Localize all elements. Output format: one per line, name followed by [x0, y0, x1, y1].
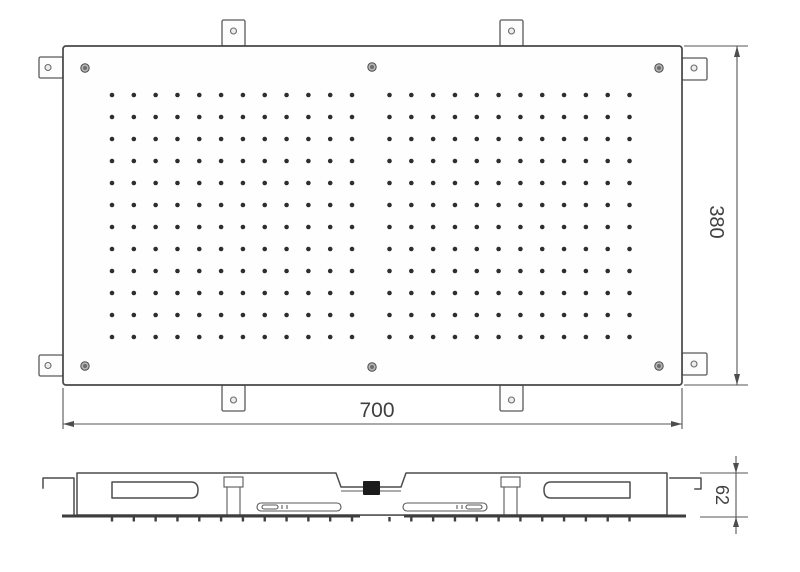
nozzle-dot: [284, 247, 289, 252]
nozzle-dot: [284, 335, 289, 340]
nozzle-dot: [409, 115, 414, 120]
nozzle-dot: [175, 181, 180, 186]
nozzle-dot: [431, 93, 436, 98]
nozzle-dot: [627, 159, 632, 164]
nozzle-dot: [197, 269, 202, 274]
nozzle-dot: [241, 159, 246, 164]
nozzle-dot: [350, 203, 355, 208]
nozzle-dot: [241, 137, 246, 142]
tab-hole: [691, 361, 697, 367]
nozzle-dot: [605, 335, 610, 340]
nozzle-dot: [262, 225, 267, 230]
nozzle-dot: [241, 93, 246, 98]
nozzle-dot: [431, 247, 436, 252]
nozzle-dot: [110, 225, 115, 230]
nozzle-dot: [540, 247, 545, 252]
nozzle-dot: [453, 115, 458, 120]
nozzle-dot: [197, 247, 202, 252]
nozzle-dot: [584, 225, 589, 230]
nozzle-dot: [496, 137, 501, 142]
screw: [81, 64, 89, 72]
nozzle-dot: [306, 225, 311, 230]
nozzle-dot: [387, 181, 392, 186]
nozzle-dot: [431, 291, 436, 296]
nozzle-dot: [453, 93, 458, 98]
right-channel-slot: [544, 482, 630, 498]
nozzle-dot: [387, 115, 392, 120]
nozzle-dot: [197, 313, 202, 318]
nozzle-dot: [306, 247, 311, 252]
left-fastener-slot: [257, 503, 341, 511]
nozzle-dot: [350, 93, 355, 98]
nozzle-dot: [219, 247, 224, 252]
screw: [368, 63, 376, 71]
nozzle-dot: [132, 313, 137, 318]
side-view: [43, 473, 701, 522]
nozzle-dot: [627, 291, 632, 296]
nozzle-dot: [132, 181, 137, 186]
nozzle-dot: [562, 225, 567, 230]
nozzle-dot: [153, 291, 158, 296]
nozzle-dot: [153, 335, 158, 340]
nozzle-dot: [153, 269, 158, 274]
nozzle-dot: [474, 93, 479, 98]
nozzle-dot: [197, 159, 202, 164]
nozzle-dot: [132, 269, 137, 274]
nozzle-dot: [387, 247, 392, 252]
dimension-width: 700: [63, 388, 682, 429]
nozzle-dot: [328, 313, 333, 318]
nozzle-dot: [627, 181, 632, 186]
nozzle-dot: [350, 225, 355, 230]
nozzle-dot: [518, 137, 523, 142]
nozzle-dot: [409, 269, 414, 274]
nozzle-dot: [219, 181, 224, 186]
nozzle-dot: [409, 247, 414, 252]
nozzle-dot: [562, 313, 567, 318]
nozzle-dot: [328, 203, 333, 208]
nozzle-dot: [518, 335, 523, 340]
nozzle-dot: [518, 159, 523, 164]
nozzle-dot: [518, 291, 523, 296]
nozzle-dot: [584, 291, 589, 296]
nozzle-dot: [110, 159, 115, 164]
nozzle-dot: [562, 137, 567, 142]
nozzle-dot: [219, 291, 224, 296]
nozzle-dot: [132, 115, 137, 120]
nozzle-dot: [175, 159, 180, 164]
dimension-height: 380: [684, 46, 748, 385]
top-view: [39, 20, 707, 411]
nozzle-dot: [496, 93, 501, 98]
nozzle-dot: [306, 335, 311, 340]
nozzle-dot: [627, 247, 632, 252]
nozzle-dot: [350, 335, 355, 340]
nozzle-dot: [431, 181, 436, 186]
nozzle-dot: [562, 269, 567, 274]
dimension-width-label: 700: [359, 399, 394, 422]
nozzle-dot: [132, 225, 137, 230]
nozzle-dot: [605, 225, 610, 230]
nozzle-dot: [350, 181, 355, 186]
nozzle-dot: [284, 313, 289, 318]
nozzle-dot: [306, 137, 311, 142]
nozzle-dot: [627, 115, 632, 120]
nozzle-dot: [328, 137, 333, 142]
nozzle-dot: [197, 93, 202, 98]
nozzle-dot: [241, 335, 246, 340]
nozzle-dot: [518, 93, 523, 98]
nozzle-dot: [431, 137, 436, 142]
nozzle-dot: [584, 269, 589, 274]
tab-hole: [45, 363, 51, 369]
left-hook: [43, 478, 74, 515]
nozzle-dot: [175, 93, 180, 98]
nozzle-dot: [241, 291, 246, 296]
nozzle-dot: [627, 225, 632, 230]
nozzle-dot: [262, 203, 267, 208]
left-channel-slot: [112, 482, 198, 498]
nozzle-dot: [241, 181, 246, 186]
nozzle-dot: [496, 291, 501, 296]
arrowhead-right: [671, 421, 682, 427]
nozzle-dot: [328, 247, 333, 252]
nozzle-dot: [605, 137, 610, 142]
nozzle-dot: [540, 313, 545, 318]
side-nozzle-ticks: [112, 517, 630, 522]
nozzle-dot: [350, 291, 355, 296]
right-fastener-slot: [403, 503, 487, 511]
nozzle-dot: [328, 115, 333, 120]
tab-hole: [691, 65, 697, 71]
screw: [655, 64, 663, 72]
nozzle-dot: [387, 291, 392, 296]
nozzle-dot: [110, 137, 115, 142]
nozzle-dot: [627, 203, 632, 208]
nozzle-dot: [241, 247, 246, 252]
nozzle-dot: [197, 203, 202, 208]
nozzle-dot: [540, 159, 545, 164]
nozzle-dot: [496, 203, 501, 208]
nozzle-dot: [496, 225, 501, 230]
nozzle-dot: [328, 269, 333, 274]
nozzle-dot: [219, 203, 224, 208]
nozzle-dot: [262, 159, 267, 164]
nozzle-dot: [409, 335, 414, 340]
nozzle-dot: [153, 115, 158, 120]
nozzle-dot: [153, 203, 158, 208]
nozzle-dot: [132, 159, 137, 164]
nozzle-dot: [562, 335, 567, 340]
nozzle-dot: [175, 247, 180, 252]
nozzle-dot: [262, 313, 267, 318]
nozzle-dot: [562, 115, 567, 120]
nozzle-dot: [474, 269, 479, 274]
screw: [368, 363, 376, 371]
nozzle-dot: [584, 159, 589, 164]
nozzle-dot: [306, 181, 311, 186]
drawing-page: 700 380: [0, 0, 800, 572]
nozzle-dot: [431, 159, 436, 164]
nozzle-dot: [262, 269, 267, 274]
nozzle-dot: [284, 291, 289, 296]
nozzle-dot: [431, 335, 436, 340]
nozzle-dot: [175, 225, 180, 230]
nozzle-dot: [284, 159, 289, 164]
nozzle-dot: [132, 291, 137, 296]
nozzle-dot: [584, 247, 589, 252]
nozzle-dot: [453, 291, 458, 296]
nozzle-dot: [110, 291, 115, 296]
nozzle-dot: [474, 313, 479, 318]
nozzle-dot: [387, 203, 392, 208]
nozzle-dot: [350, 269, 355, 274]
nozzle-dot: [474, 137, 479, 142]
nozzle-dot: [453, 203, 458, 208]
nozzle-dot: [474, 181, 479, 186]
nozzle-dot: [175, 313, 180, 318]
nozzle-dot: [474, 225, 479, 230]
nozzle-dot: [584, 181, 589, 186]
nozzle-dot: [431, 313, 436, 318]
nozzle-dot: [284, 93, 289, 98]
arrowhead-left: [63, 421, 74, 427]
nozzle-dot: [328, 225, 333, 230]
nozzle-dot: [540, 181, 545, 186]
nozzle-dot: [219, 225, 224, 230]
nozzle-dot: [284, 203, 289, 208]
nozzle-dot: [262, 181, 267, 186]
nozzle-dot: [584, 137, 589, 142]
nozzle-dot: [153, 159, 158, 164]
nozzle-dot: [110, 115, 115, 120]
nozzle-dot: [409, 137, 414, 142]
nozzle-dot: [328, 93, 333, 98]
nozzle-dot: [284, 137, 289, 142]
nozzle-dot: [306, 115, 311, 120]
nozzle-dot: [387, 335, 392, 340]
nozzle-dot: [153, 181, 158, 186]
nozzle-dot: [175, 269, 180, 274]
nozzle-dot: [262, 335, 267, 340]
nozzle-dot: [306, 203, 311, 208]
inlet-connector: [363, 481, 380, 495]
nozzle-dot: [175, 291, 180, 296]
nozzle-dot: [262, 137, 267, 142]
arrowhead-down: [734, 374, 740, 385]
nozzle-dot: [605, 93, 610, 98]
arrowhead-down: [733, 463, 739, 473]
nozzle-dot: [605, 203, 610, 208]
nozzle-dot: [584, 335, 589, 340]
nozzle-dot: [110, 269, 115, 274]
nozzle-dot: [605, 115, 610, 120]
nozzle-dot: [518, 269, 523, 274]
nozzle-dot: [540, 335, 545, 340]
nozzle-dot: [175, 335, 180, 340]
nozzle-dot: [562, 247, 567, 252]
nozzle-dot: [562, 203, 567, 208]
nozzle-dot: [518, 115, 523, 120]
nozzle-dot: [110, 335, 115, 340]
nozzle-dot: [262, 247, 267, 252]
screw: [81, 362, 89, 370]
nozzle-dot: [350, 313, 355, 318]
nozzle-dot: [627, 335, 632, 340]
nozzle-dot: [328, 181, 333, 186]
nozzle-dot: [262, 291, 267, 296]
nozzle-dot: [110, 203, 115, 208]
nozzle-dot: [387, 137, 392, 142]
nozzle-dot: [306, 269, 311, 274]
nozzle-dot: [175, 115, 180, 120]
dimension-height-label: 380: [705, 205, 727, 238]
nozzle-dot: [431, 225, 436, 230]
nozzle-dot: [453, 247, 458, 252]
nozzle-dot: [175, 137, 180, 142]
nozzle-dot: [518, 203, 523, 208]
nozzle-dot: [241, 225, 246, 230]
nozzle-dot: [518, 181, 523, 186]
nozzle-dot: [605, 159, 610, 164]
nozzle-dot: [328, 335, 333, 340]
nozzle-dot: [540, 93, 545, 98]
nozzle-dot: [627, 269, 632, 274]
nozzle-dot: [350, 137, 355, 142]
nozzle-dot: [328, 291, 333, 296]
tab-hole: [231, 28, 237, 34]
nozzle-dot: [409, 313, 414, 318]
nozzle-dot: [241, 269, 246, 274]
nozzle-dot: [496, 313, 501, 318]
nozzle-dot: [241, 313, 246, 318]
nozzle-dot: [197, 291, 202, 296]
nozzle-dot: [241, 115, 246, 120]
nozzle-dot: [350, 115, 355, 120]
nozzle-dot: [605, 269, 610, 274]
nozzle-dot: [540, 203, 545, 208]
nozzle-dot: [627, 93, 632, 98]
nozzle-dot: [409, 159, 414, 164]
nozzle-dot: [540, 115, 545, 120]
nozzle-dot: [518, 225, 523, 230]
nozzle-dot: [496, 181, 501, 186]
nozzle-dot: [474, 159, 479, 164]
nozzle-dot: [110, 247, 115, 252]
right-hook: [670, 478, 701, 489]
nozzle-dot: [562, 159, 567, 164]
nozzle-dot: [605, 247, 610, 252]
nozzle-dot: [453, 313, 458, 318]
left-tab-section: [224, 477, 243, 515]
tab-hole: [509, 397, 515, 403]
nozzle-dot: [627, 313, 632, 318]
nozzle-dot: [387, 313, 392, 318]
nozzle-dot: [387, 225, 392, 230]
nozzle-dot: [387, 269, 392, 274]
tab-hole: [509, 28, 515, 34]
nozzle-dot: [540, 269, 545, 274]
nozzle-dot: [153, 247, 158, 252]
nozzle-dot: [153, 137, 158, 142]
nozzle-dot: [540, 137, 545, 142]
nozzle-dot: [219, 93, 224, 98]
nozzle-dot: [496, 159, 501, 164]
nozzle-dot: [409, 203, 414, 208]
nozzle-dot: [284, 181, 289, 186]
nozzle-dot: [409, 181, 414, 186]
nozzle-dot: [110, 181, 115, 186]
nozzle-dot: [431, 269, 436, 274]
nozzle-dot: [409, 93, 414, 98]
arrowhead-up: [734, 46, 740, 57]
nozzle-dot: [284, 115, 289, 120]
nozzle-dot: [540, 291, 545, 296]
nozzle-dot: [474, 291, 479, 296]
nozzle-dot: [284, 269, 289, 274]
nozzle-dot: [474, 203, 479, 208]
nozzle-dot: [132, 203, 137, 208]
nozzle-dot: [306, 291, 311, 296]
nozzle-dot: [110, 313, 115, 318]
nozzle-dot: [350, 247, 355, 252]
nozzle-dot: [584, 115, 589, 120]
nozzle-dot: [453, 181, 458, 186]
drawing-canvas: 700 380: [0, 0, 800, 572]
nozzle-dot: [627, 137, 632, 142]
nozzle-dot: [453, 225, 458, 230]
nozzle-dot: [562, 291, 567, 296]
nozzle-dot: [219, 335, 224, 340]
nozzle-dot: [518, 247, 523, 252]
nozzle-dot: [540, 225, 545, 230]
nozzle-dot: [453, 159, 458, 164]
nozzle-dot: [197, 181, 202, 186]
nozzle-dot: [197, 115, 202, 120]
nozzle-dot: [153, 225, 158, 230]
nozzle-dot: [409, 225, 414, 230]
nozzle-dot: [132, 247, 137, 252]
nozzle-dot: [153, 313, 158, 318]
nozzle-dot: [350, 159, 355, 164]
nozzle-dot: [306, 93, 311, 98]
nozzle-dot: [474, 335, 479, 340]
nozzle-dot: [474, 115, 479, 120]
tab-hole: [45, 65, 51, 71]
nozzle-dot: [328, 159, 333, 164]
nozzle-dot: [132, 137, 137, 142]
nozzle-dot: [241, 203, 246, 208]
dimension-depth: 62: [700, 456, 748, 534]
nozzle-dot: [175, 203, 180, 208]
nozzle-dot: [605, 181, 610, 186]
nozzle-dot: [562, 181, 567, 186]
nozzle-dot: [453, 335, 458, 340]
nozzle-dot: [306, 159, 311, 164]
nozzle-dot: [584, 313, 589, 318]
arrowhead-up: [733, 517, 739, 527]
nozzle-dot: [197, 335, 202, 340]
nozzle-dot: [132, 93, 137, 98]
nozzle-dot: [132, 335, 137, 340]
nozzle-dot: [219, 313, 224, 318]
nozzle-dot: [110, 93, 115, 98]
nozzle-dot: [219, 115, 224, 120]
nozzle-dot: [518, 313, 523, 318]
nozzle-dot: [431, 115, 436, 120]
nozzle-dot: [197, 225, 202, 230]
nozzle-dot: [387, 93, 392, 98]
